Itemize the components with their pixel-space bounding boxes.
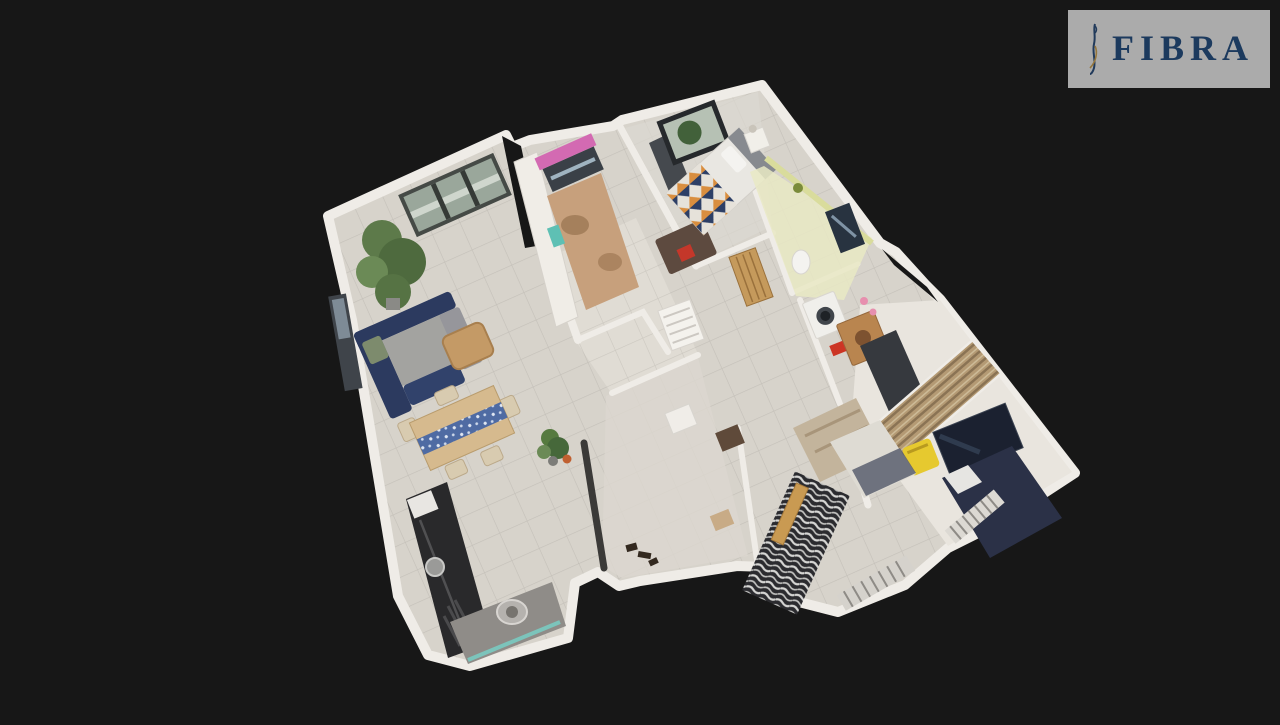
hob (426, 558, 444, 576)
island-woodgrain (561, 215, 589, 235)
apartment-dollhouse-render (0, 0, 1280, 720)
pink-item (870, 309, 877, 316)
toilet (792, 250, 810, 274)
brand-logo-text: FIBRA (1112, 30, 1254, 66)
green-towel (793, 183, 803, 193)
brand-watermark-panel: FIBRA (1068, 10, 1270, 88)
dollhouse-3d-viewport[interactable] (0, 0, 1280, 720)
pink-item (860, 297, 868, 305)
fibra-stem-icon (1084, 22, 1106, 76)
island-woodgrain (598, 253, 622, 271)
orange-pot (563, 455, 572, 464)
